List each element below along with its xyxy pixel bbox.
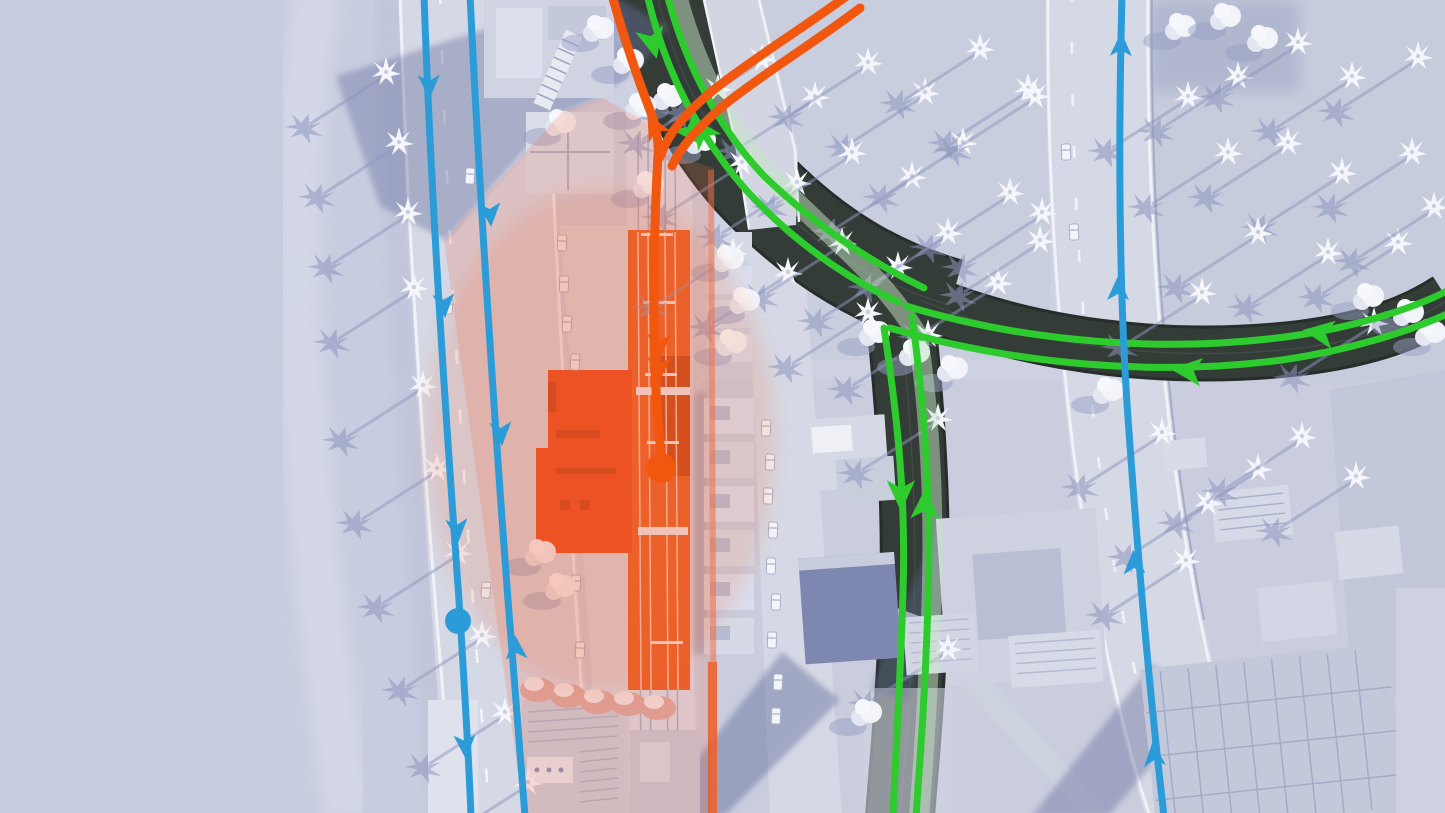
roof-detail	[496, 8, 542, 78]
catchment-glow	[425, 190, 775, 690]
parked-vehicle	[773, 674, 783, 690]
orange-transit-stop[interactable]	[646, 453, 676, 483]
edge-tower	[1396, 588, 1445, 813]
parked-vehicle	[767, 632, 777, 648]
game-viewport[interactable]	[0, 0, 1445, 813]
catchment-edge	[711, 170, 714, 813]
parked-vehicle	[771, 594, 781, 610]
parked-vehicle	[771, 708, 781, 724]
parked-vehicle	[1069, 224, 1079, 240]
parked-vehicle	[768, 522, 778, 538]
blue-transit-stop[interactable]	[445, 608, 471, 634]
parked-vehicle	[1061, 144, 1071, 160]
parked-vehicle	[766, 558, 776, 574]
parked-vehicle	[465, 168, 475, 184]
